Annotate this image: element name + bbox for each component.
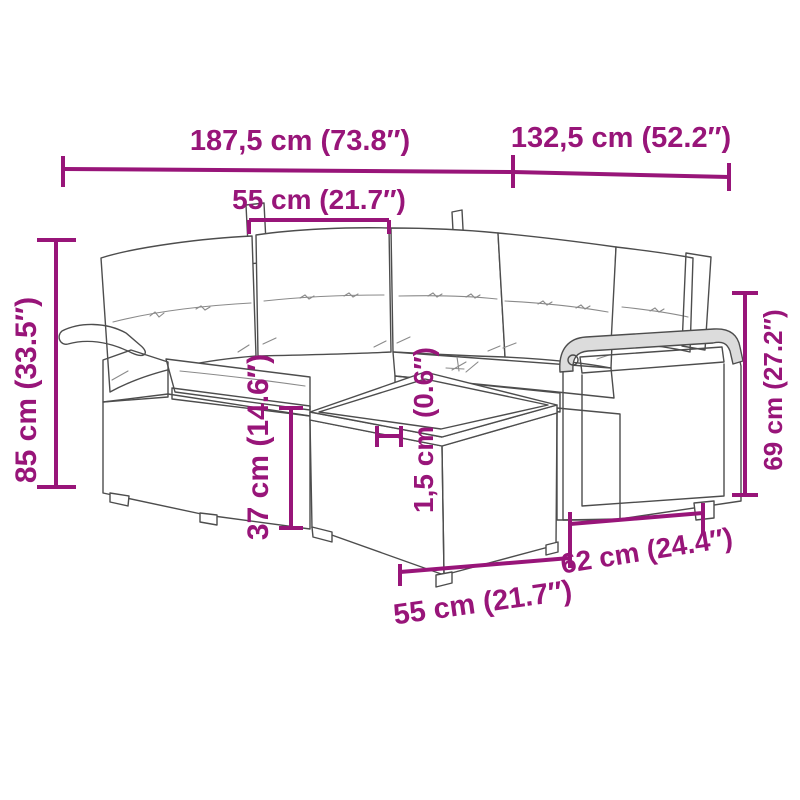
dimension-arm-height-line — [732, 293, 758, 495]
dim-label-table-height: 37 cm (14.6″) — [242, 354, 275, 540]
table-foot-right — [546, 542, 558, 555]
dim-label-seat-width: 55 cm (21.7″) — [232, 184, 406, 215]
dim-label-table-width: 55 cm (21.7″) — [391, 575, 574, 632]
dim-label-arm-height: 69 cm (27.2″) — [758, 309, 788, 470]
seat-cushion-left — [166, 359, 310, 410]
back-cushion-2 — [256, 228, 391, 356]
sofa-foot-left — [110, 493, 129, 506]
dim-label-side-depth: 62 cm (24.4″) — [558, 522, 734, 580]
dim-label-tabletop-thickness: 1,5 cm (0.6″) — [408, 347, 439, 513]
dim-label-total-depth: 132,5 cm (52.2″) — [511, 122, 731, 154]
sofa-base-right — [557, 408, 620, 520]
sofa-base-left — [103, 394, 310, 529]
dimension-diagram-canvas: 187,5 cm (73.8″) 132,5 cm (52.2″) 55 cm … — [0, 0, 800, 800]
dimension-table-height-line — [279, 408, 303, 528]
sofa-illustration — [59, 203, 743, 587]
table-foot-left — [312, 527, 332, 542]
table-foot-front — [436, 572, 452, 587]
sofa-foot-middle — [200, 513, 217, 525]
dim-label-overall-height: 85 cm (33.5″) — [10, 297, 43, 483]
dim-label-total-width: 187,5 cm (73.8″) — [190, 125, 410, 157]
product-dimension-image: 187,5 cm (73.8″) 132,5 cm (52.2″) 55 cm … — [0, 0, 800, 800]
